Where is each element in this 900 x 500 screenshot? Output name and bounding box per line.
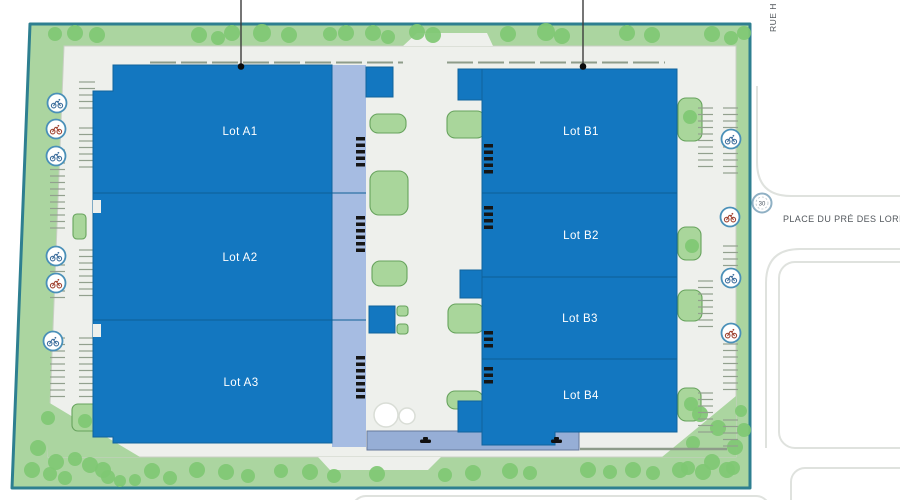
tree — [30, 440, 46, 456]
icon-handlebar — [733, 274, 735, 276]
speed-sign: 30 — [753, 194, 772, 213]
car-icon — [554, 437, 559, 440]
loading-dock-mark — [484, 144, 493, 148]
car-icon — [551, 440, 562, 444]
tree — [218, 464, 234, 480]
green-patch — [370, 171, 408, 215]
street-label-rue: RUE H — [768, 3, 778, 32]
courtyard-blue-block — [369, 306, 395, 333]
lot-region-b4[interactable] — [458, 359, 677, 445]
icon-ring — [722, 269, 741, 288]
loading-dock-mark — [484, 157, 493, 161]
loading-dock-mark — [484, 170, 493, 174]
loading-dock-mark — [356, 163, 365, 167]
annotation-dot-1 — [238, 63, 245, 70]
loading-dock-mark — [356, 363, 365, 367]
icon-handlebar — [55, 337, 57, 339]
tree — [41, 411, 55, 425]
green-patch — [448, 304, 484, 333]
car-amenity-icon — [47, 147, 66, 166]
icon-handlebar — [58, 252, 60, 254]
lot-region-b2[interactable] — [482, 193, 677, 277]
building-a: Lot A1 Lot A2 Lot A3 — [93, 65, 393, 447]
building-b: Lot B1 Lot B2 Lot B3 Lot B4 — [458, 69, 677, 445]
tree — [323, 27, 337, 41]
tree — [537, 23, 555, 41]
tree — [580, 462, 596, 478]
loading-dock-mark — [356, 236, 365, 240]
loading-dock-mark — [356, 249, 365, 253]
loading-dock-mark — [484, 344, 493, 348]
tree — [603, 465, 617, 479]
icon-handlebar — [733, 135, 735, 137]
tree — [704, 26, 720, 42]
green-patch — [397, 306, 408, 316]
annotation-dot-2 — [580, 63, 587, 70]
tree — [644, 27, 660, 43]
truck-amenity-icon — [722, 130, 741, 149]
roundabout-circle-1 — [374, 403, 398, 427]
tree — [338, 25, 354, 41]
tree — [58, 471, 72, 485]
car-icon — [420, 440, 431, 444]
tree — [681, 461, 695, 475]
loading-dock-mark — [484, 374, 493, 378]
loading-dock-mark — [484, 206, 493, 210]
moto-amenity-icon — [47, 274, 66, 293]
loading-dock-mark — [484, 367, 493, 371]
tree — [302, 464, 318, 480]
tree — [191, 27, 207, 43]
tree — [465, 465, 481, 481]
tree — [724, 31, 738, 45]
loading-dock-mark — [356, 389, 365, 393]
icon-ring — [44, 332, 63, 351]
loading-dock-mark — [484, 213, 493, 217]
tree — [67, 25, 83, 41]
icon-ring — [47, 147, 66, 166]
tree — [48, 454, 64, 470]
tree — [281, 27, 297, 43]
tree — [241, 469, 255, 483]
tree — [726, 461, 740, 475]
tree — [24, 462, 40, 478]
building-a-tab — [366, 67, 393, 97]
tree — [163, 471, 177, 485]
icon-handlebar — [59, 99, 61, 101]
moto-amenity-icon — [722, 324, 741, 343]
tree — [737, 26, 751, 40]
loading-dock-mark — [356, 242, 365, 246]
tree — [129, 474, 141, 486]
loading-dock-mark — [356, 382, 365, 386]
street-label-place: PLACE DU PRÉ DES LORIOTS — [783, 214, 900, 224]
loading-dock-mark — [356, 395, 365, 399]
tree — [274, 464, 288, 478]
building-b-tab — [460, 270, 482, 298]
green-patch — [370, 114, 406, 133]
icon-handlebar — [58, 279, 60, 281]
icon-ring — [722, 130, 741, 149]
tree — [68, 452, 82, 466]
icon-handlebar — [58, 152, 60, 154]
icon-ring — [722, 324, 741, 343]
green-patch — [372, 261, 407, 286]
loading-dock-mark — [484, 331, 493, 335]
car-amenity-icon — [44, 332, 63, 351]
tree — [554, 28, 570, 44]
tree — [425, 27, 441, 43]
tree — [82, 457, 98, 473]
loading-dock-mark — [484, 219, 493, 223]
loading-dock-mark — [484, 226, 493, 230]
tree — [502, 463, 518, 479]
icon-ring — [47, 274, 66, 293]
tree — [144, 463, 160, 479]
loading-dock-mark — [484, 380, 493, 384]
tree — [646, 466, 660, 480]
loading-dock-mark — [356, 216, 365, 220]
tree — [365, 25, 381, 41]
loading-dock-mark — [356, 137, 365, 141]
tree — [48, 27, 62, 41]
loading-dock-mark — [356, 369, 365, 373]
tree — [735, 405, 747, 417]
tree — [500, 26, 516, 42]
lot-region-b3[interactable] — [482, 277, 677, 359]
loading-dock-mark — [356, 150, 365, 154]
truck-amenity-icon — [47, 247, 66, 266]
tree — [89, 27, 105, 43]
tree — [704, 454, 720, 470]
green-patch — [678, 290, 702, 321]
site-plan: Lot A1 Lot A2 Lot A3 Lot B1 Lot B2 Lot B… — [0, 0, 900, 500]
tree — [683, 110, 697, 124]
tree — [685, 239, 699, 253]
tree — [684, 397, 698, 411]
tree — [211, 31, 225, 45]
lot-region-a3[interactable] — [93, 320, 366, 443]
green-patch — [73, 214, 86, 239]
icon-ring — [47, 247, 66, 266]
tree — [224, 25, 240, 41]
loading-dock-mark — [484, 151, 493, 155]
tree — [381, 30, 395, 44]
loading-dock-mark — [356, 356, 365, 360]
tree — [438, 468, 452, 482]
tree — [369, 466, 385, 482]
tree — [78, 414, 92, 428]
moto-amenity-icon — [721, 208, 740, 227]
loading-dock-mark — [356, 157, 365, 161]
loading-dock-mark — [484, 338, 493, 342]
tree — [189, 462, 205, 478]
icon-ring — [47, 120, 66, 139]
roundabout-circle-2 — [399, 408, 415, 424]
tree — [737, 423, 751, 437]
moto-amenity-icon — [47, 120, 66, 139]
icon-ring — [721, 208, 740, 227]
tree — [114, 475, 126, 487]
speed-sign-label: 30 — [759, 202, 766, 208]
car-icon — [423, 437, 428, 440]
loading-dock-mark — [484, 164, 493, 168]
tree — [523, 466, 537, 480]
truck-amenity-icon — [48, 94, 67, 113]
tree — [409, 24, 425, 40]
tree — [727, 439, 743, 455]
icon-handlebar — [732, 213, 734, 215]
site-plan-canvas: Lot A1 Lot A2 Lot A3 Lot B1 Lot B2 Lot B… — [0, 0, 900, 500]
loading-dock-mark — [356, 229, 365, 233]
loading-dock-mark — [356, 144, 365, 148]
icon-ring — [48, 94, 67, 113]
loading-dock-mark — [356, 376, 365, 380]
icon-handlebar — [58, 125, 60, 127]
tree — [101, 470, 115, 484]
icon-handlebar — [733, 329, 735, 331]
lot-region-a1[interactable] — [93, 65, 366, 193]
tree — [619, 25, 635, 41]
truck-amenity-icon — [722, 269, 741, 288]
loading-dock-mark — [356, 223, 365, 227]
lot-region-a2[interactable] — [93, 193, 366, 320]
lot-region-b1[interactable] — [458, 69, 677, 193]
tree — [625, 462, 641, 478]
tree — [253, 24, 271, 42]
tree — [327, 469, 341, 483]
green-patch — [397, 324, 408, 334]
